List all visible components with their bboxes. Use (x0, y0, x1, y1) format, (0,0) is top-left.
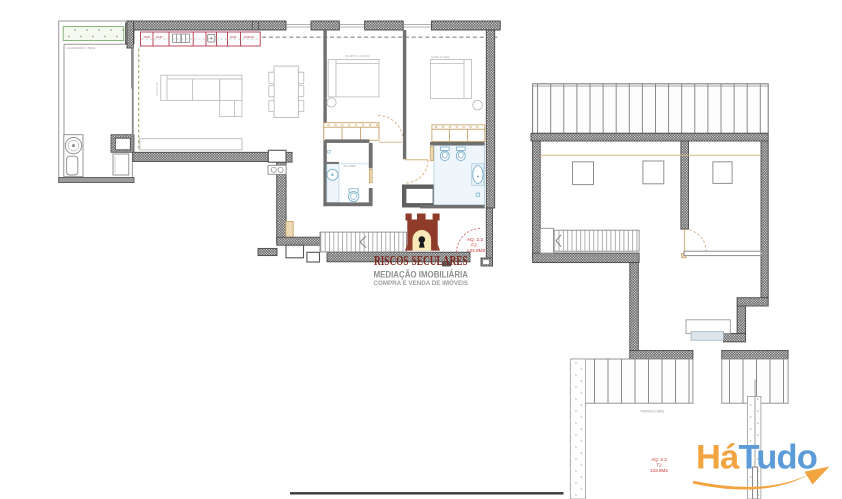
svg-text:HáTudo: HáTudo (696, 439, 817, 477)
svg-text:TERRACO 38M2: TERRACO 38M2 (640, 410, 665, 414)
svg-text:RISCOS: RISCOS (374, 253, 409, 268)
svg-text:F2: F2 (471, 242, 477, 248)
svg-text:COMPRA E VENDA DE IMÓVEIS: COMPRA E VENDA DE IMÓVEIS (374, 278, 469, 287)
svg-text:60x60: 60x60 (144, 36, 151, 39)
svg-text:AQ. 2.2: AQ. 2.2 (651, 457, 667, 462)
svg-text:MEDIAÇÃO IMOBILIÁRIA: MEDIAÇÃO IMOBILIÁRIA (374, 268, 469, 280)
svg-text:143.8M2: 143.8M2 (467, 248, 486, 254)
svg-text:60x60: 60x60 (156, 36, 163, 39)
svg-text:SUITE 16.0M2: SUITE 16.0M2 (431, 55, 450, 59)
svg-text:60x60: 60x60 (230, 36, 237, 39)
svg-text:LAVANDARIA 7.50M2: LAVANDARIA 7.50M2 (66, 46, 96, 50)
svg-text:WC 4.5M2: WC 4.5M2 (344, 164, 357, 168)
svg-text:SOFA 3LUG: SOFA 3LUG (156, 82, 159, 96)
svg-text:T2: T2 (656, 463, 662, 468)
svg-text:SECULARES: SECULARES (412, 253, 468, 268)
svg-text:143.8M2: 143.8M2 (650, 468, 668, 473)
svg-text:AQ. 2.2: AQ. 2.2 (467, 237, 484, 243)
svg-text:60x60x90: 60x60x90 (244, 36, 255, 39)
svg-text:QUARTO 1 12.5M2: QUARTO 1 12.5M2 (345, 54, 370, 58)
